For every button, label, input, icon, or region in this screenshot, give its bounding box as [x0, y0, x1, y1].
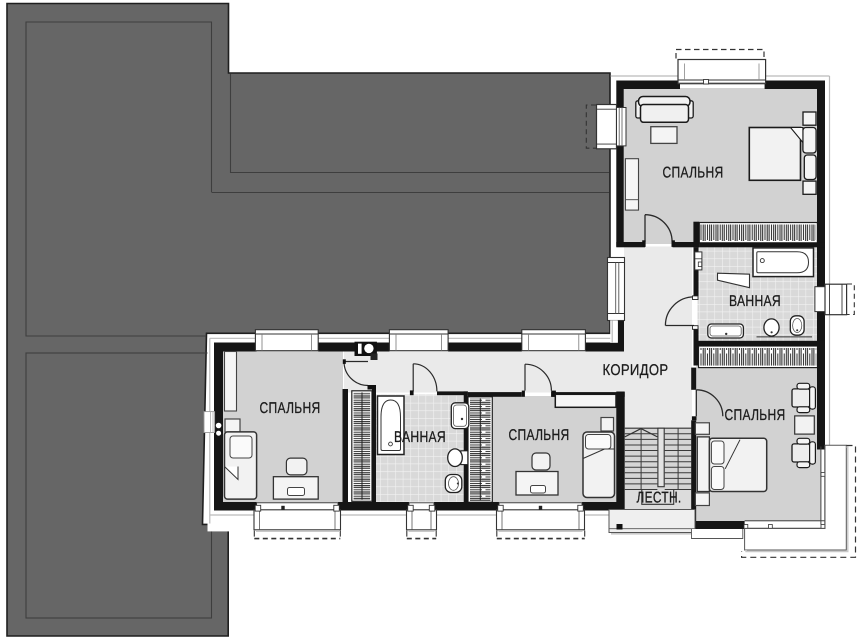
svg-text:ВАННАЯ: ВАННАЯ — [394, 429, 446, 446]
svg-text:СПАЛЬНЯ: СПАЛЬНЯ — [260, 400, 321, 417]
svg-text:СПАЛЬНЯ: СПАЛЬНЯ — [509, 427, 570, 444]
svg-text:СПАЛЬНЯ: СПАЛЬНЯ — [725, 407, 786, 424]
svg-text:КОРИДОР: КОРИДОР — [603, 362, 669, 379]
svg-text:ЛЕСТН.: ЛЕСТН. — [637, 490, 682, 507]
svg-text:СПАЛЬНЯ: СПАЛЬНЯ — [663, 165, 724, 182]
svg-text:ВАННАЯ: ВАННАЯ — [729, 293, 781, 310]
